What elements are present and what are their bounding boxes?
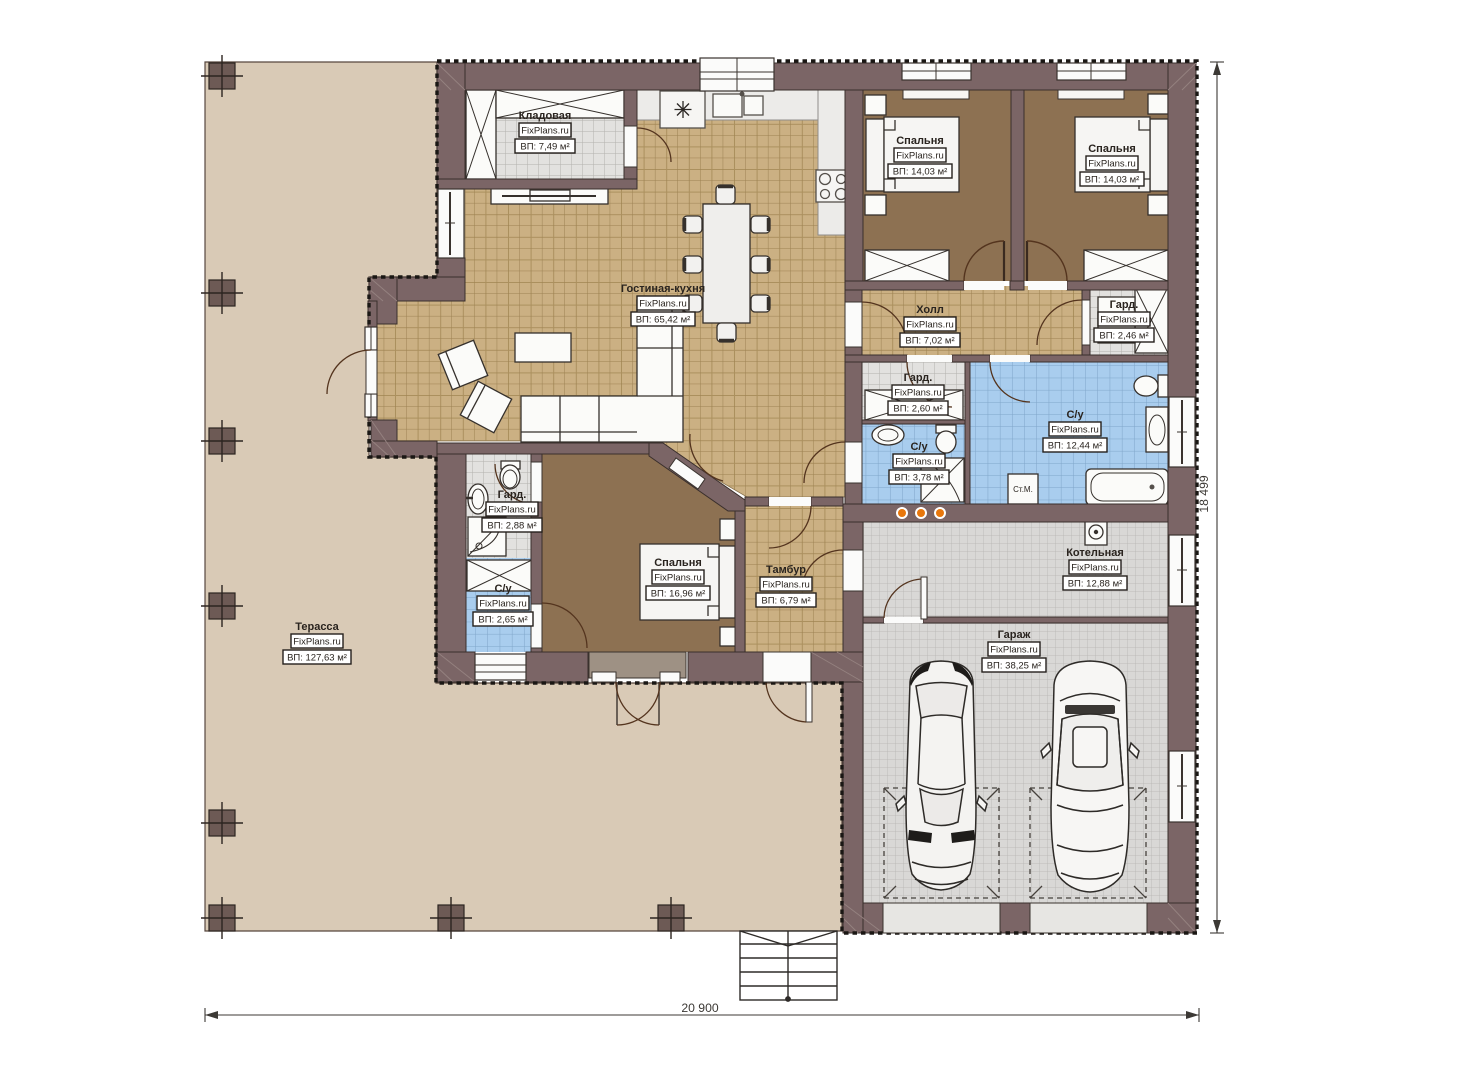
- svg-text:Гард.: Гард.: [1110, 299, 1139, 311]
- svg-text:Кладовая: Кладовая: [519, 110, 572, 122]
- svg-text:Котельная: Котельная: [1066, 547, 1124, 559]
- svg-text:Ст.М.: Ст.М.: [1013, 485, 1033, 494]
- svg-text:ВП: 2,65 м²: ВП: 2,65 м²: [478, 615, 527, 626]
- svg-text:FixPlans.ru: FixPlans.ru: [1088, 159, 1136, 170]
- svg-text:ВП: 6,79 м²: ВП: 6,79 м²: [761, 596, 810, 607]
- svg-text:Спальня: Спальня: [896, 135, 944, 147]
- svg-text:18 499: 18 499: [1197, 475, 1211, 512]
- svg-text:ВП: 127,63 м²: ВП: 127,63 м²: [287, 653, 347, 664]
- svg-text:ВП: 2,88 м²: ВП: 2,88 м²: [487, 521, 536, 532]
- svg-text:FixPlans.ru: FixPlans.ru: [293, 637, 341, 648]
- svg-text:Гард.: Гард.: [498, 489, 527, 501]
- svg-text:FixPlans.ru: FixPlans.ru: [895, 457, 943, 468]
- svg-text:FixPlans.ru: FixPlans.ru: [479, 599, 527, 610]
- svg-text:FixPlans.ru: FixPlans.ru: [639, 299, 687, 310]
- svg-text:FixPlans.ru: FixPlans.ru: [521, 126, 569, 137]
- svg-text:FixPlans.ru: FixPlans.ru: [894, 388, 942, 399]
- svg-text:С/у: С/у: [910, 441, 928, 453]
- svg-text:FixPlans.ru: FixPlans.ru: [906, 320, 954, 331]
- svg-text:FixPlans.ru: FixPlans.ru: [896, 151, 944, 162]
- svg-text:Гостиная-кухня: Гостиная-кухня: [621, 283, 705, 295]
- svg-text:FixPlans.ru: FixPlans.ru: [1100, 315, 1148, 326]
- svg-text:Спальня: Спальня: [1088, 143, 1136, 155]
- svg-text:FixPlans.ru: FixPlans.ru: [762, 580, 810, 591]
- svg-text:FixPlans.ru: FixPlans.ru: [1071, 563, 1119, 574]
- svg-text:ВП: 14,03 м²: ВП: 14,03 м²: [1085, 175, 1140, 186]
- svg-text:FixPlans.ru: FixPlans.ru: [488, 505, 536, 516]
- svg-text:FixPlans.ru: FixPlans.ru: [1051, 425, 1099, 436]
- svg-text:Гард.: Гард.: [904, 372, 933, 384]
- svg-text:ВП: 65,42 м²: ВП: 65,42 м²: [636, 315, 691, 326]
- svg-text:ВП: 2,60 м²: ВП: 2,60 м²: [893, 404, 942, 415]
- svg-text:FixPlans.ru: FixPlans.ru: [654, 573, 702, 584]
- svg-text:ВП: 7,49 м²: ВП: 7,49 м²: [520, 142, 569, 153]
- svg-text:ВП: 16,96 м²: ВП: 16,96 м²: [651, 589, 706, 600]
- svg-text:20 900: 20 900: [681, 1001, 718, 1015]
- svg-text:ВП: 38,25 м²: ВП: 38,25 м²: [987, 661, 1042, 672]
- svg-text:Терасса: Терасса: [295, 621, 339, 633]
- svg-text:ВП: 14,03 м²: ВП: 14,03 м²: [893, 167, 948, 178]
- svg-text:ВП: 2,46 м²: ВП: 2,46 м²: [1099, 331, 1148, 342]
- svg-text:ВП: 12,44 м²: ВП: 12,44 м²: [1048, 441, 1103, 452]
- svg-text:Спальня: Спальня: [654, 557, 702, 569]
- svg-text:Гараж: Гараж: [998, 629, 1031, 641]
- svg-text:С/у: С/у: [1066, 409, 1084, 421]
- svg-text:ВП: 7,02 м²: ВП: 7,02 м²: [905, 336, 954, 347]
- svg-text:ВП: 12,88 м²: ВП: 12,88 м²: [1068, 579, 1123, 590]
- svg-text:С/у: С/у: [494, 583, 512, 595]
- svg-text:ВП: 3,78 м²: ВП: 3,78 м²: [894, 473, 943, 484]
- svg-text:Холл: Холл: [916, 304, 944, 316]
- svg-text:FixPlans.ru: FixPlans.ru: [990, 645, 1038, 656]
- svg-text:Тамбур: Тамбур: [766, 564, 806, 576]
